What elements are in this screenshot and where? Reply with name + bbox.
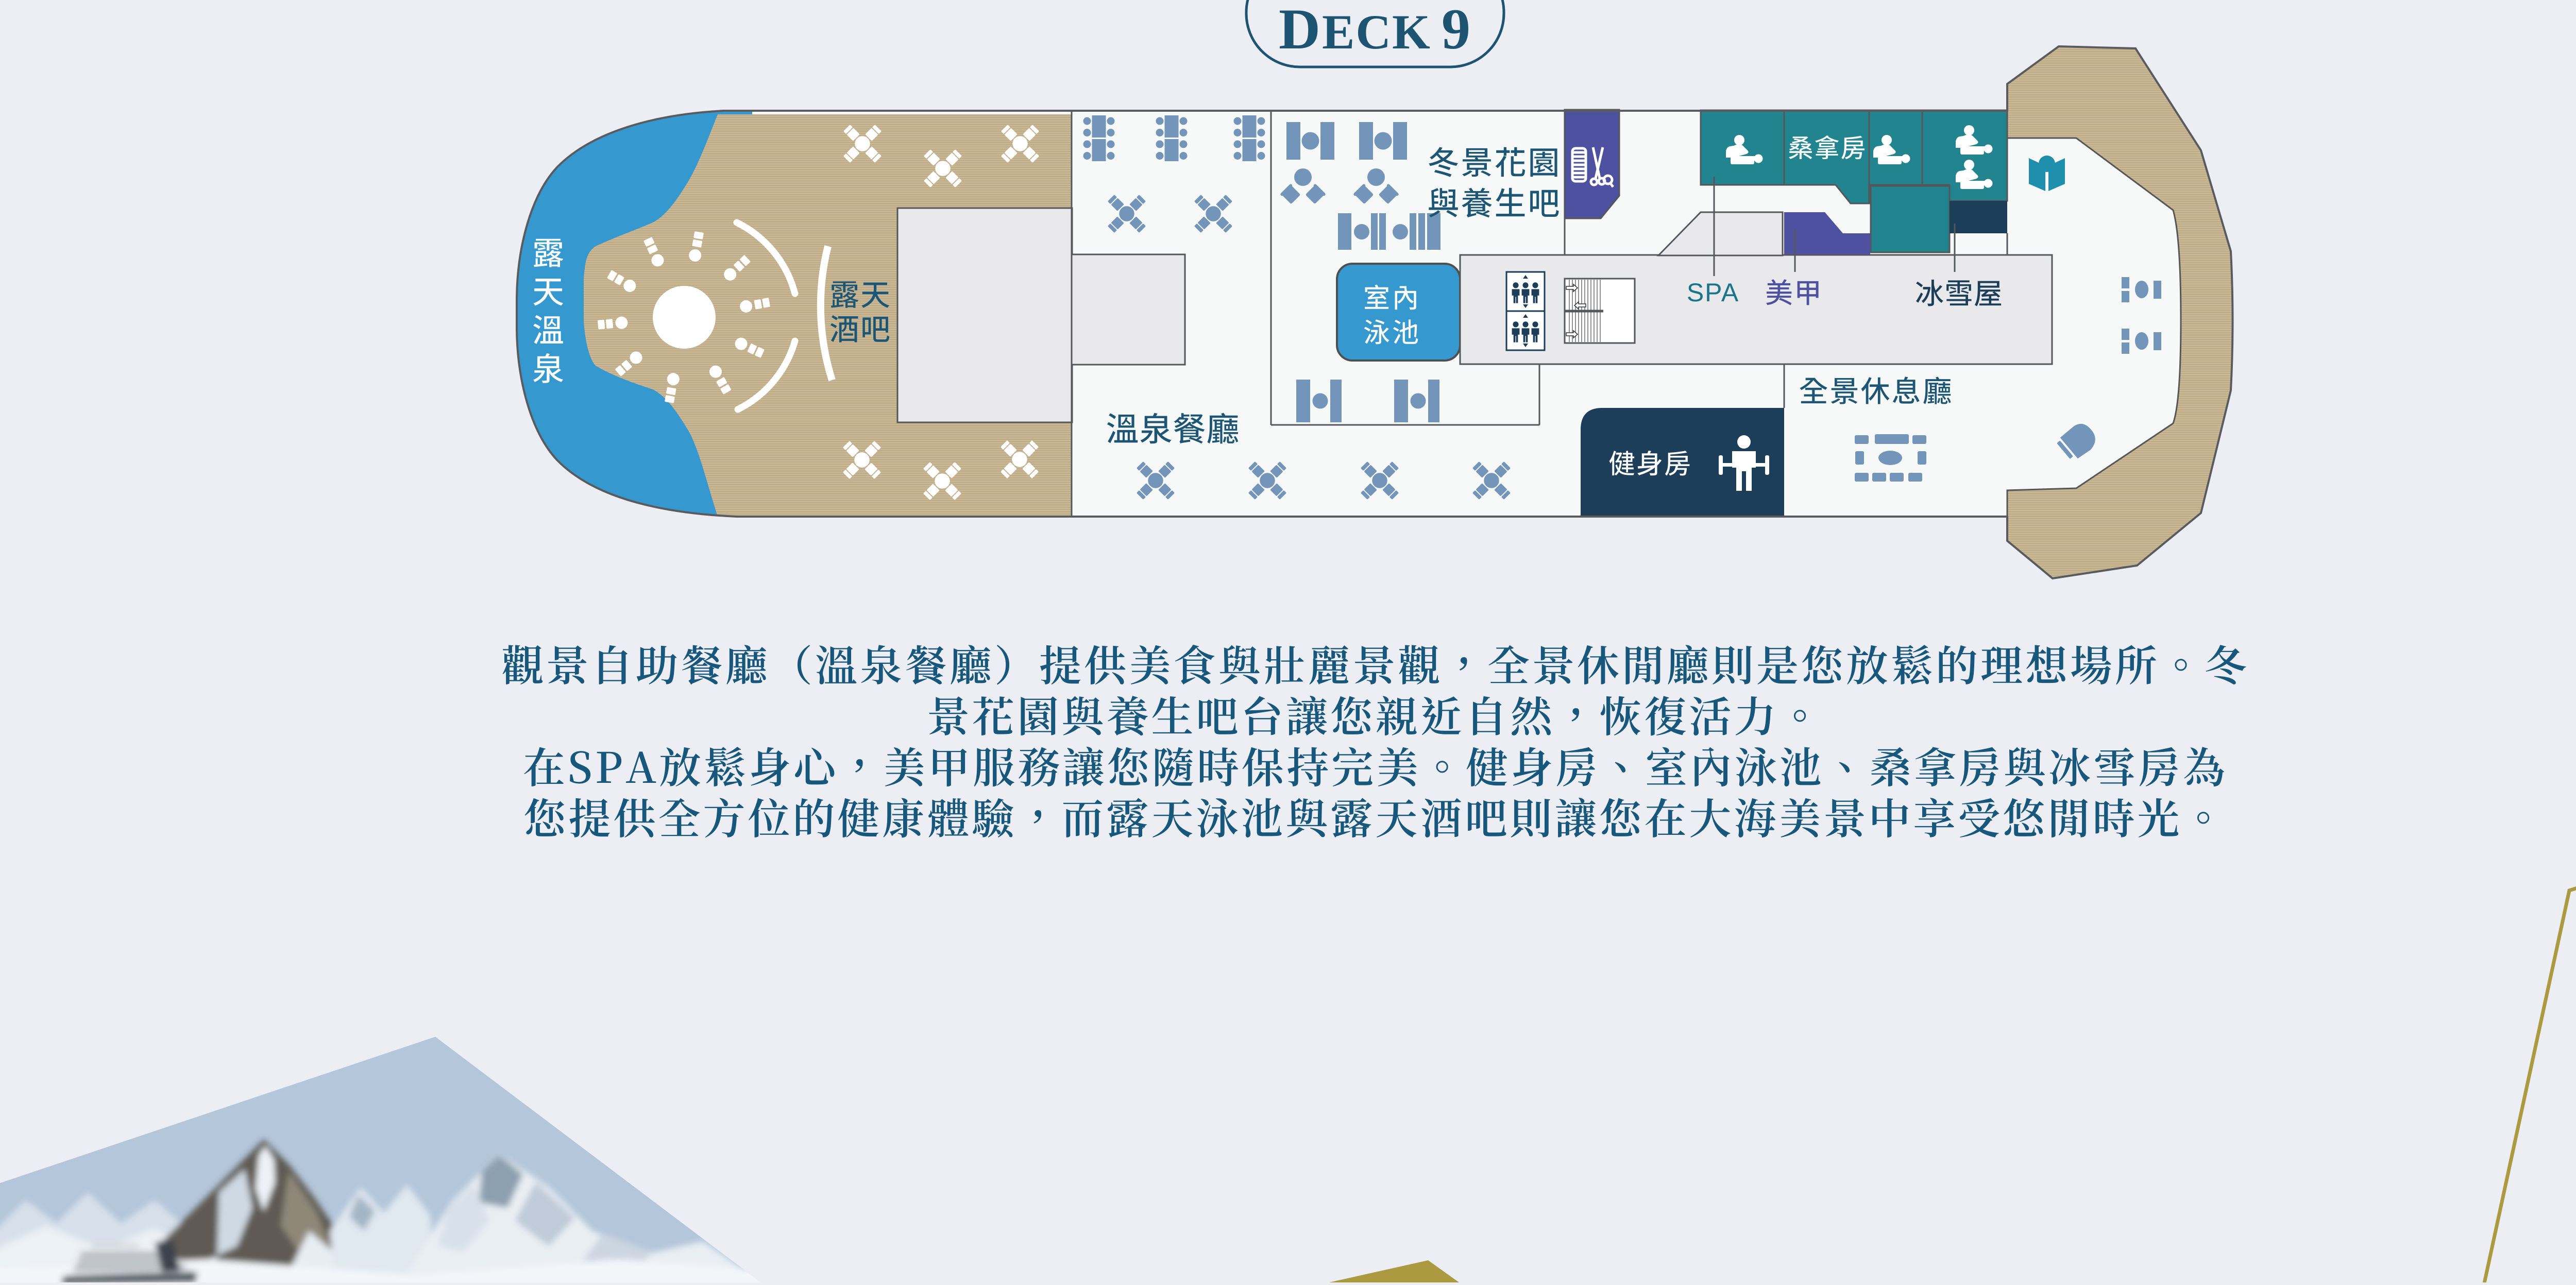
svg-text:D: D: [1279, 0, 1320, 61]
svg-text:SPA: SPA: [1687, 278, 1739, 307]
svg-text:9: 9: [1442, 0, 1470, 61]
svg-text:ECK: ECK: [1322, 5, 1431, 59]
